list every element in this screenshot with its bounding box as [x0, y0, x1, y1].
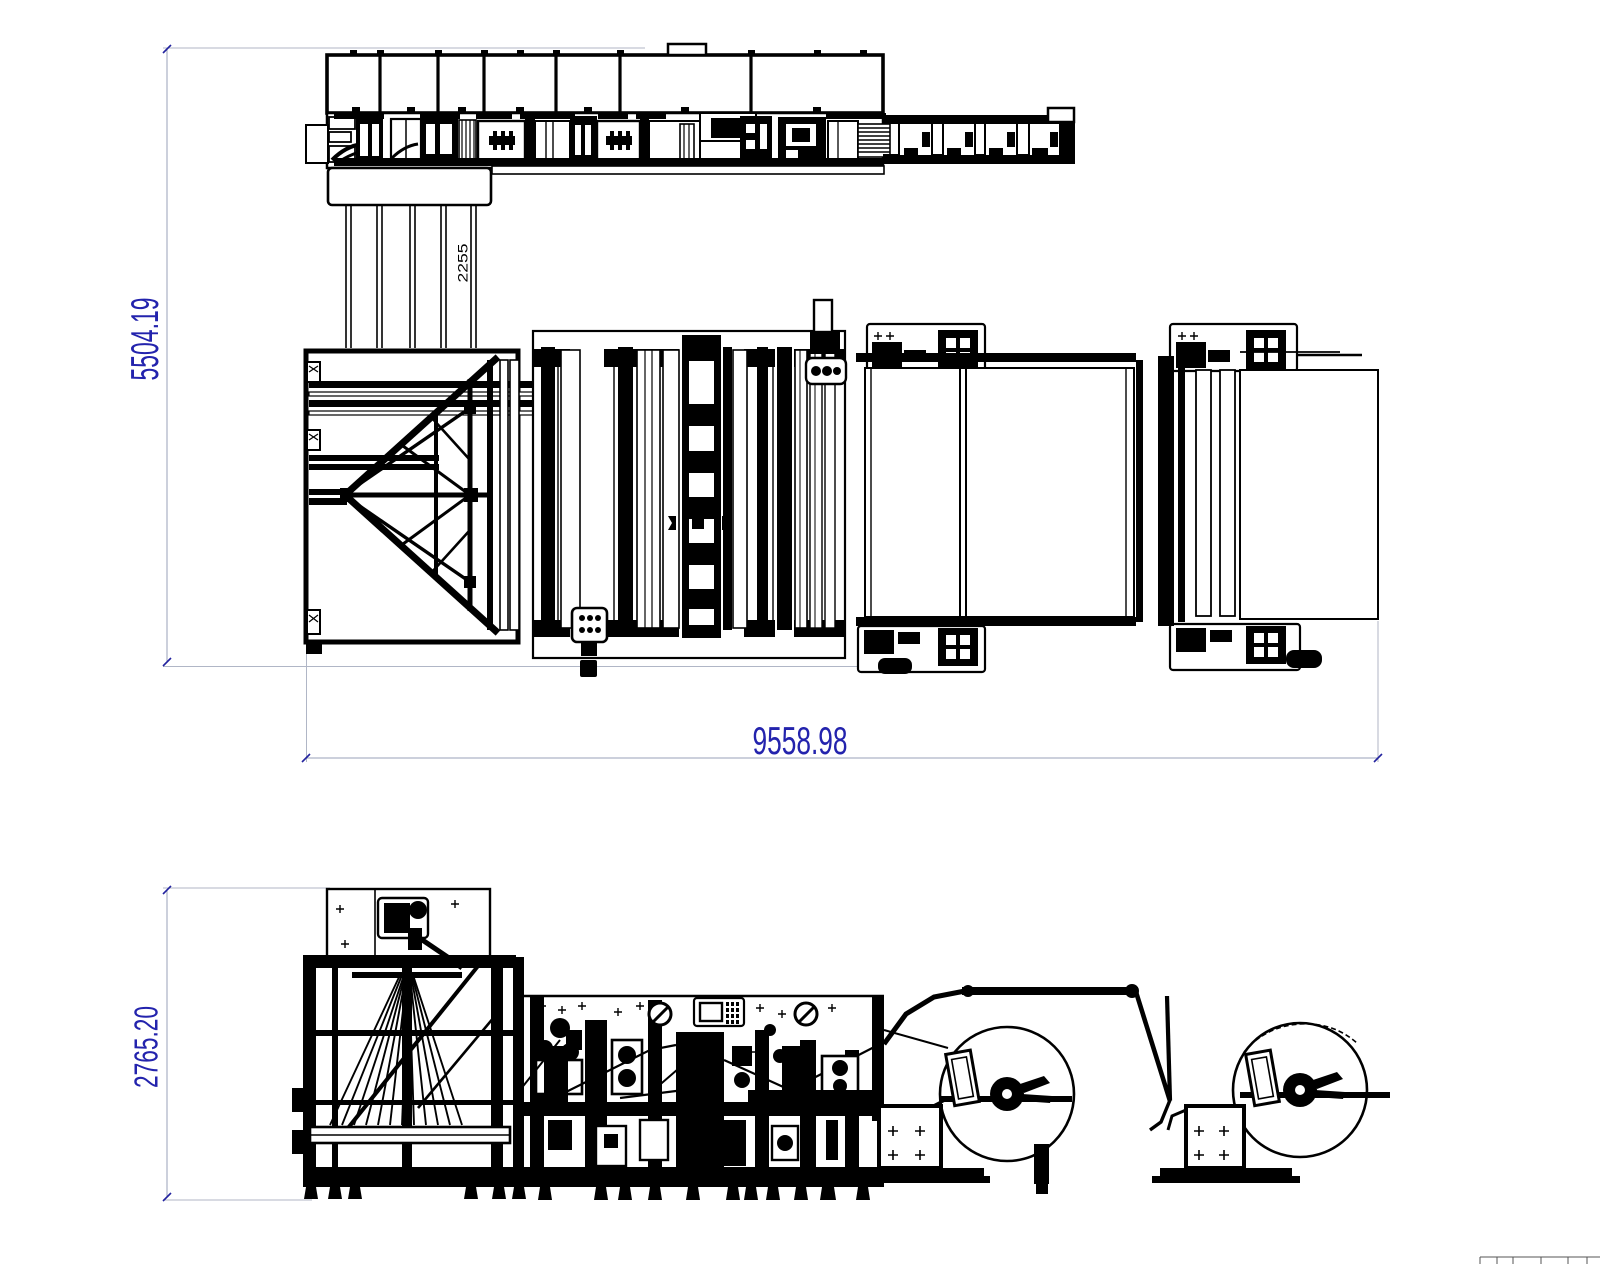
svg-text:2255: 2255 — [456, 244, 471, 283]
svg-text:9558.98: 9558.98 — [753, 720, 848, 763]
svg-text:2765.20: 2765.20 — [128, 1006, 165, 1088]
svg-text:5504.19: 5504.19 — [124, 298, 167, 381]
